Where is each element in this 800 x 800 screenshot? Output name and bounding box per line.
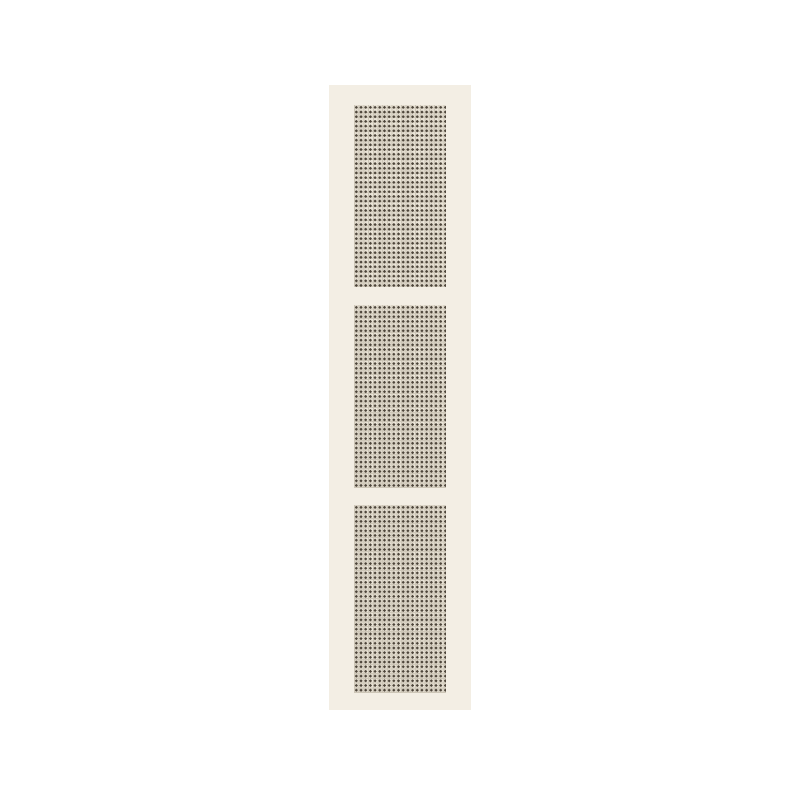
cane-panel bbox=[329, 85, 471, 710]
mesh-insert-bottom bbox=[354, 505, 446, 693]
mesh-insert-middle bbox=[354, 305, 446, 488]
mesh-insert-top bbox=[354, 105, 446, 287]
product-photo bbox=[0, 0, 800, 800]
